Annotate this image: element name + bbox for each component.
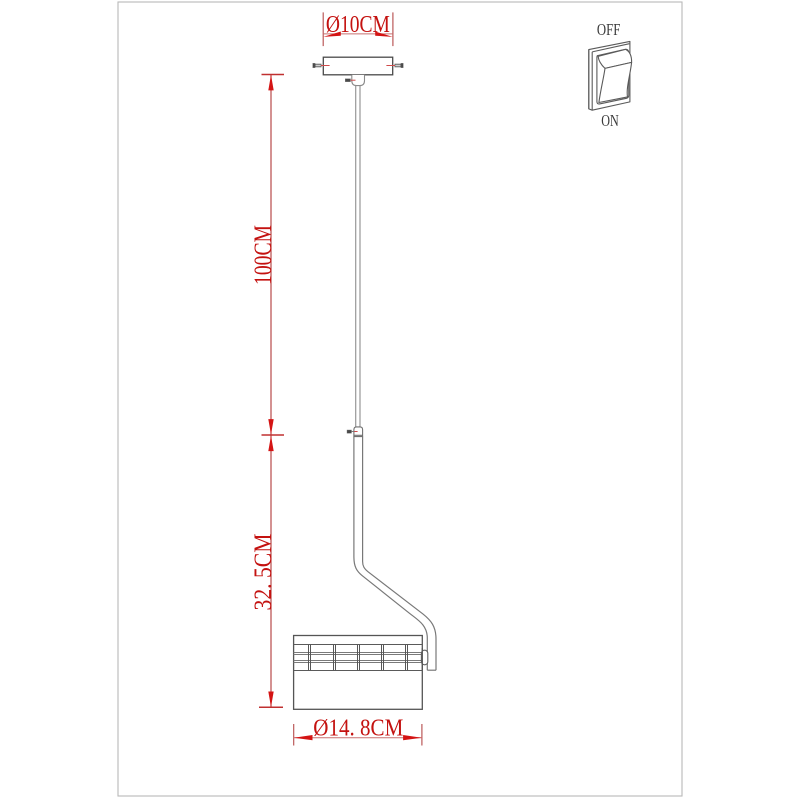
- svg-text:Ø14. 8CM: Ø14. 8CM: [313, 716, 403, 742]
- svg-text:Ø10CM: Ø10CM: [326, 11, 390, 38]
- svg-text:OFF: OFF: [597, 20, 621, 39]
- svg-text:ON: ON: [601, 111, 619, 130]
- svg-text:100CM: 100CM: [250, 225, 277, 285]
- svg-text:32. 5CM: 32. 5CM: [250, 534, 277, 611]
